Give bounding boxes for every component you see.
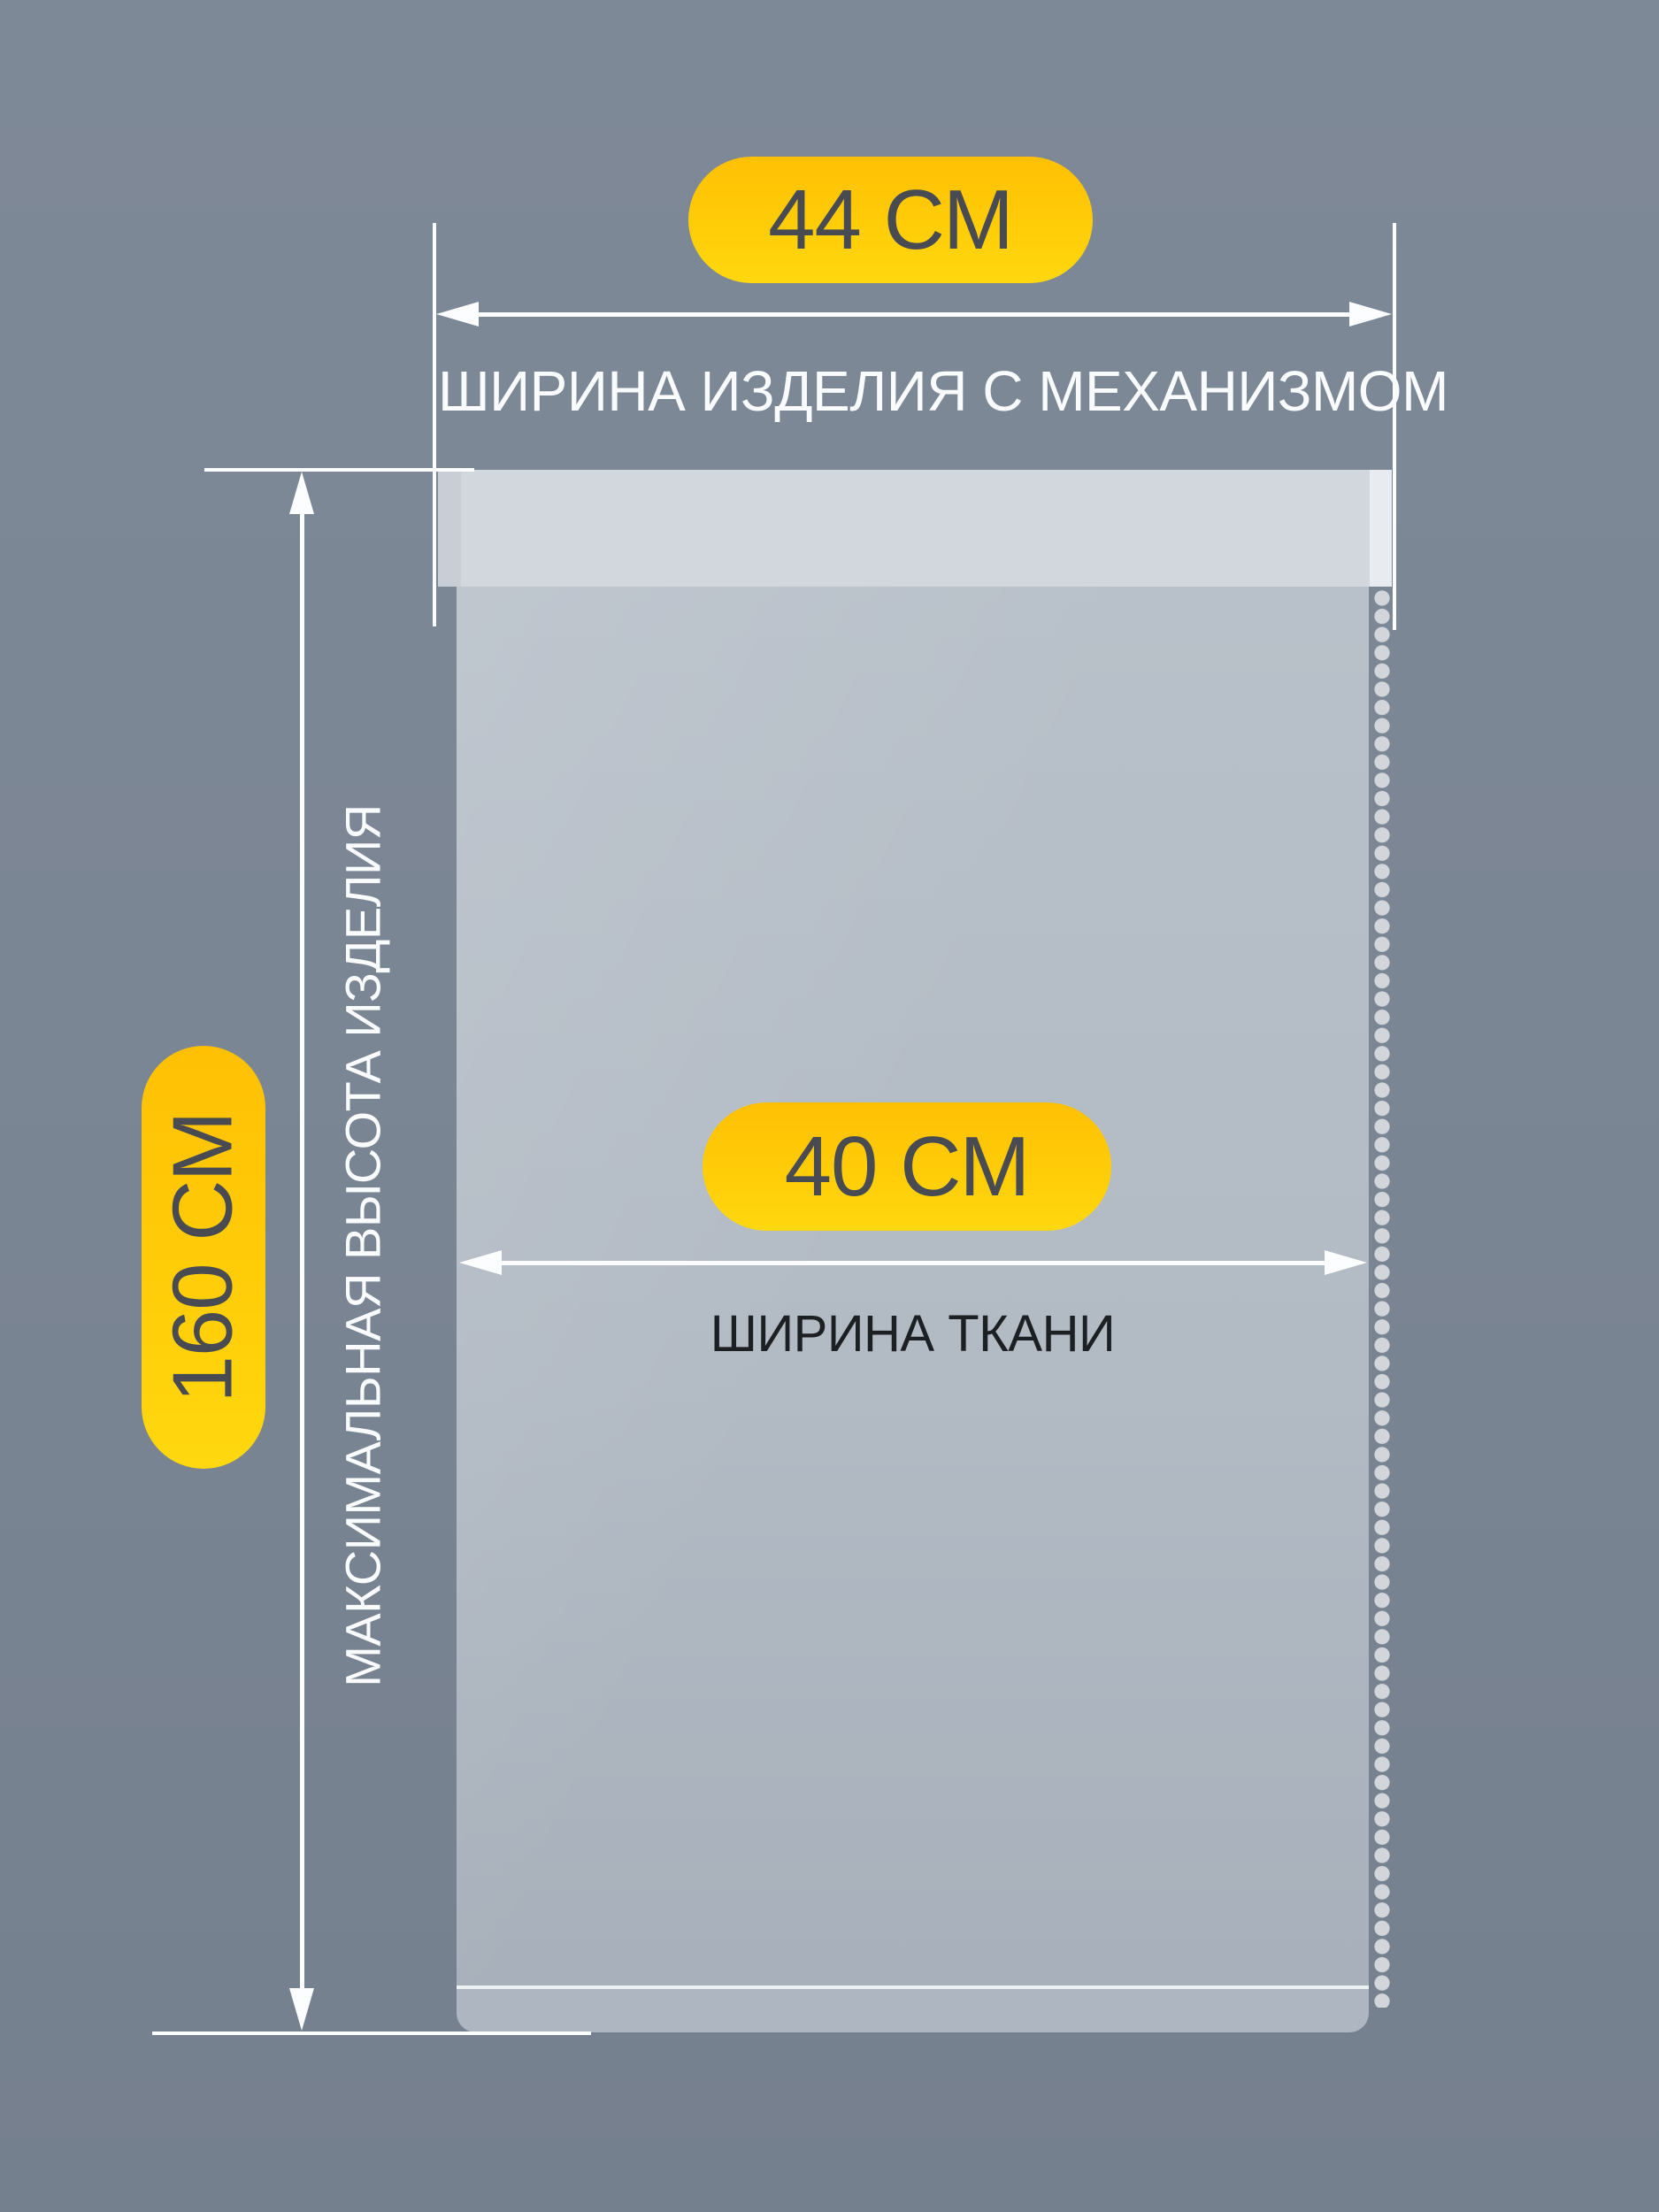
badge-max-height: 160 СМ (142, 1046, 265, 1469)
cassette-right-cap (1370, 470, 1392, 587)
fabric-width-arrowhead-left-icon (459, 1250, 502, 1275)
bead-chain (1373, 589, 1391, 2008)
fabric-width-arrowhead-right-icon (1325, 1250, 1367, 1275)
badge-fabric-width: 40 СМ (703, 1102, 1111, 1231)
height-arrowhead-down-icon (289, 1988, 314, 2031)
product-width-arrow-shaft (451, 312, 1379, 317)
product-width-arrowhead-left-icon (436, 302, 479, 326)
cassette-left-cap (438, 470, 461, 587)
blind-cassette (438, 470, 1392, 587)
blind-bottom-bar (457, 1985, 1369, 2032)
max-height-label: МАКСИМАЛЬНАЯ ВЫСОТА ИЗДЕЛИЯ (334, 804, 392, 1686)
badge-fabric-width-value: 40 СМ (785, 1118, 1030, 1216)
fabric-width-label: ШИРИНА ТКАНИ (457, 1304, 1369, 1363)
badge-product-width: 44 СМ (688, 157, 1093, 283)
baseline (152, 2032, 591, 2035)
roller-blind-dimensions-infographic: 44 СМ 40 СМ 160 СМ ШИРИНА ИЗДЕЛИЯ С МЕХА… (0, 0, 1659, 2212)
badge-max-height-value: 160 СМ (155, 1111, 252, 1402)
height-arrowhead-up-icon (289, 472, 314, 514)
fabric-width-arrow-shaft (473, 1261, 1354, 1265)
badge-product-width-value: 44 СМ (768, 172, 1013, 269)
product-width-arrowhead-right-icon (1349, 302, 1392, 326)
product-width-label: ШИРИНА ИЗДЕЛИЯ С МЕХАНИЗМОМ (438, 358, 1392, 424)
tick-top-left (204, 468, 474, 472)
tick-right (1393, 223, 1396, 630)
tick-left (433, 223, 436, 626)
height-arrow-shaft (300, 495, 304, 2000)
